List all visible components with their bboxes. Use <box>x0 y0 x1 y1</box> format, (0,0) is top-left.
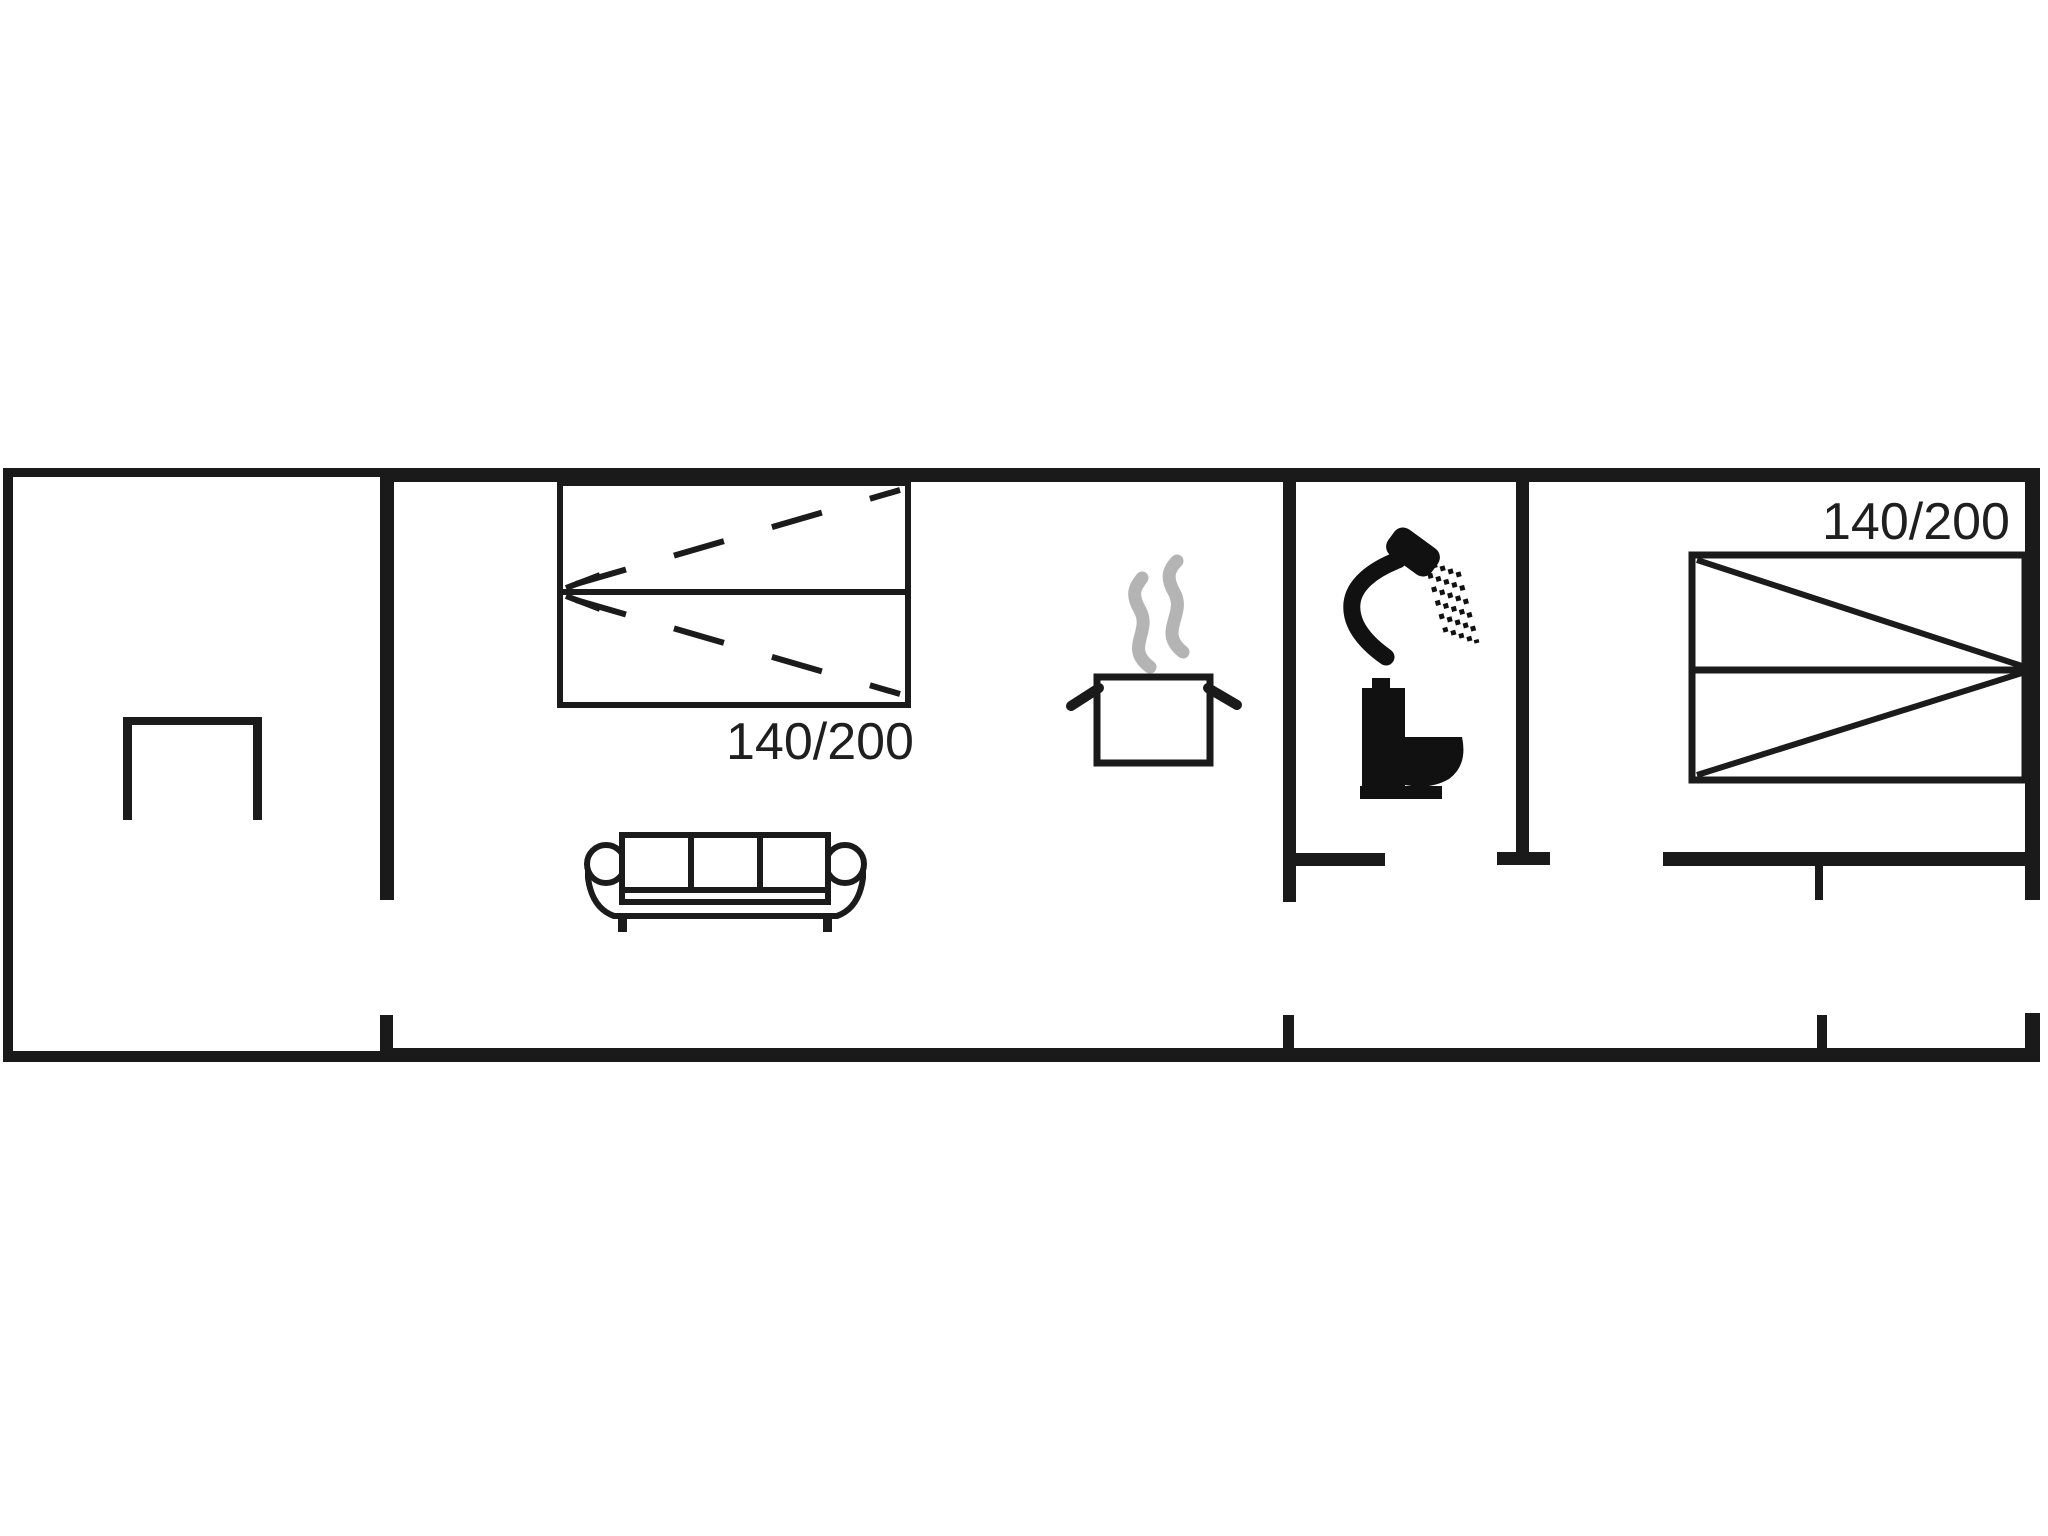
toilet-icon <box>1360 678 1463 799</box>
table-leg-right <box>253 717 262 820</box>
wall-left <box>3 468 13 1062</box>
stub-bathroom-left <box>1283 1015 1294 1051</box>
steam-icon <box>1135 561 1183 667</box>
stub-terrace <box>1817 1015 1827 1052</box>
toilet-bowl <box>1405 737 1463 787</box>
toilet-button <box>1372 678 1390 688</box>
bed-size-label-left: 140/200 <box>726 716 914 768</box>
double-bed-solid-icon <box>1692 555 2025 780</box>
shower-icon <box>1352 523 1477 657</box>
wall-bottom-annex <box>3 1051 392 1062</box>
sofa-arm-right <box>826 845 864 883</box>
tick-bedroom-bottom <box>1815 866 1823 900</box>
wall-bathroom-right <box>1516 468 1529 853</box>
stub-divider-annex <box>380 1015 393 1051</box>
sofa-icon <box>587 835 864 932</box>
sofa-seat-front <box>622 890 828 902</box>
table-top <box>123 717 262 725</box>
bed-size-label-right: 140/200 <box>1822 496 2010 548</box>
steam-wisp-right <box>1169 561 1183 652</box>
table-icon <box>123 717 262 820</box>
sofa-back <box>622 835 828 890</box>
toilet-base <box>1360 786 1442 799</box>
sofa-leg-left <box>618 916 627 932</box>
wall-right-lower <box>2025 1013 2040 1062</box>
sofa-leg-right <box>823 916 832 932</box>
floor-plan-canvas: 140/200 140/200 <box>0 0 2048 1536</box>
wall-bathroom-bottom <box>1283 853 1385 866</box>
cap-bathroom-right <box>1497 852 1550 865</box>
table-leg-left <box>123 717 132 820</box>
wall-divider-annex <box>380 468 394 900</box>
pot-body <box>1097 677 1210 763</box>
double-bed-dashed-icon <box>560 483 908 705</box>
toilet-tank <box>1362 688 1405 788</box>
steam-wisp-left <box>1135 578 1150 667</box>
shower-spray <box>1426 560 1477 643</box>
wall-top-main <box>380 468 2040 482</box>
shower-arm <box>1352 560 1398 657</box>
cooking-pot-icon <box>1071 677 1237 763</box>
floor-plan-drawing <box>0 0 2048 1536</box>
wall-top-annex <box>3 468 380 477</box>
wall-bedroom-bottom <box>1663 852 2027 866</box>
wall-bathroom-left <box>1283 468 1296 902</box>
wall-bottom-main <box>380 1048 2037 1062</box>
